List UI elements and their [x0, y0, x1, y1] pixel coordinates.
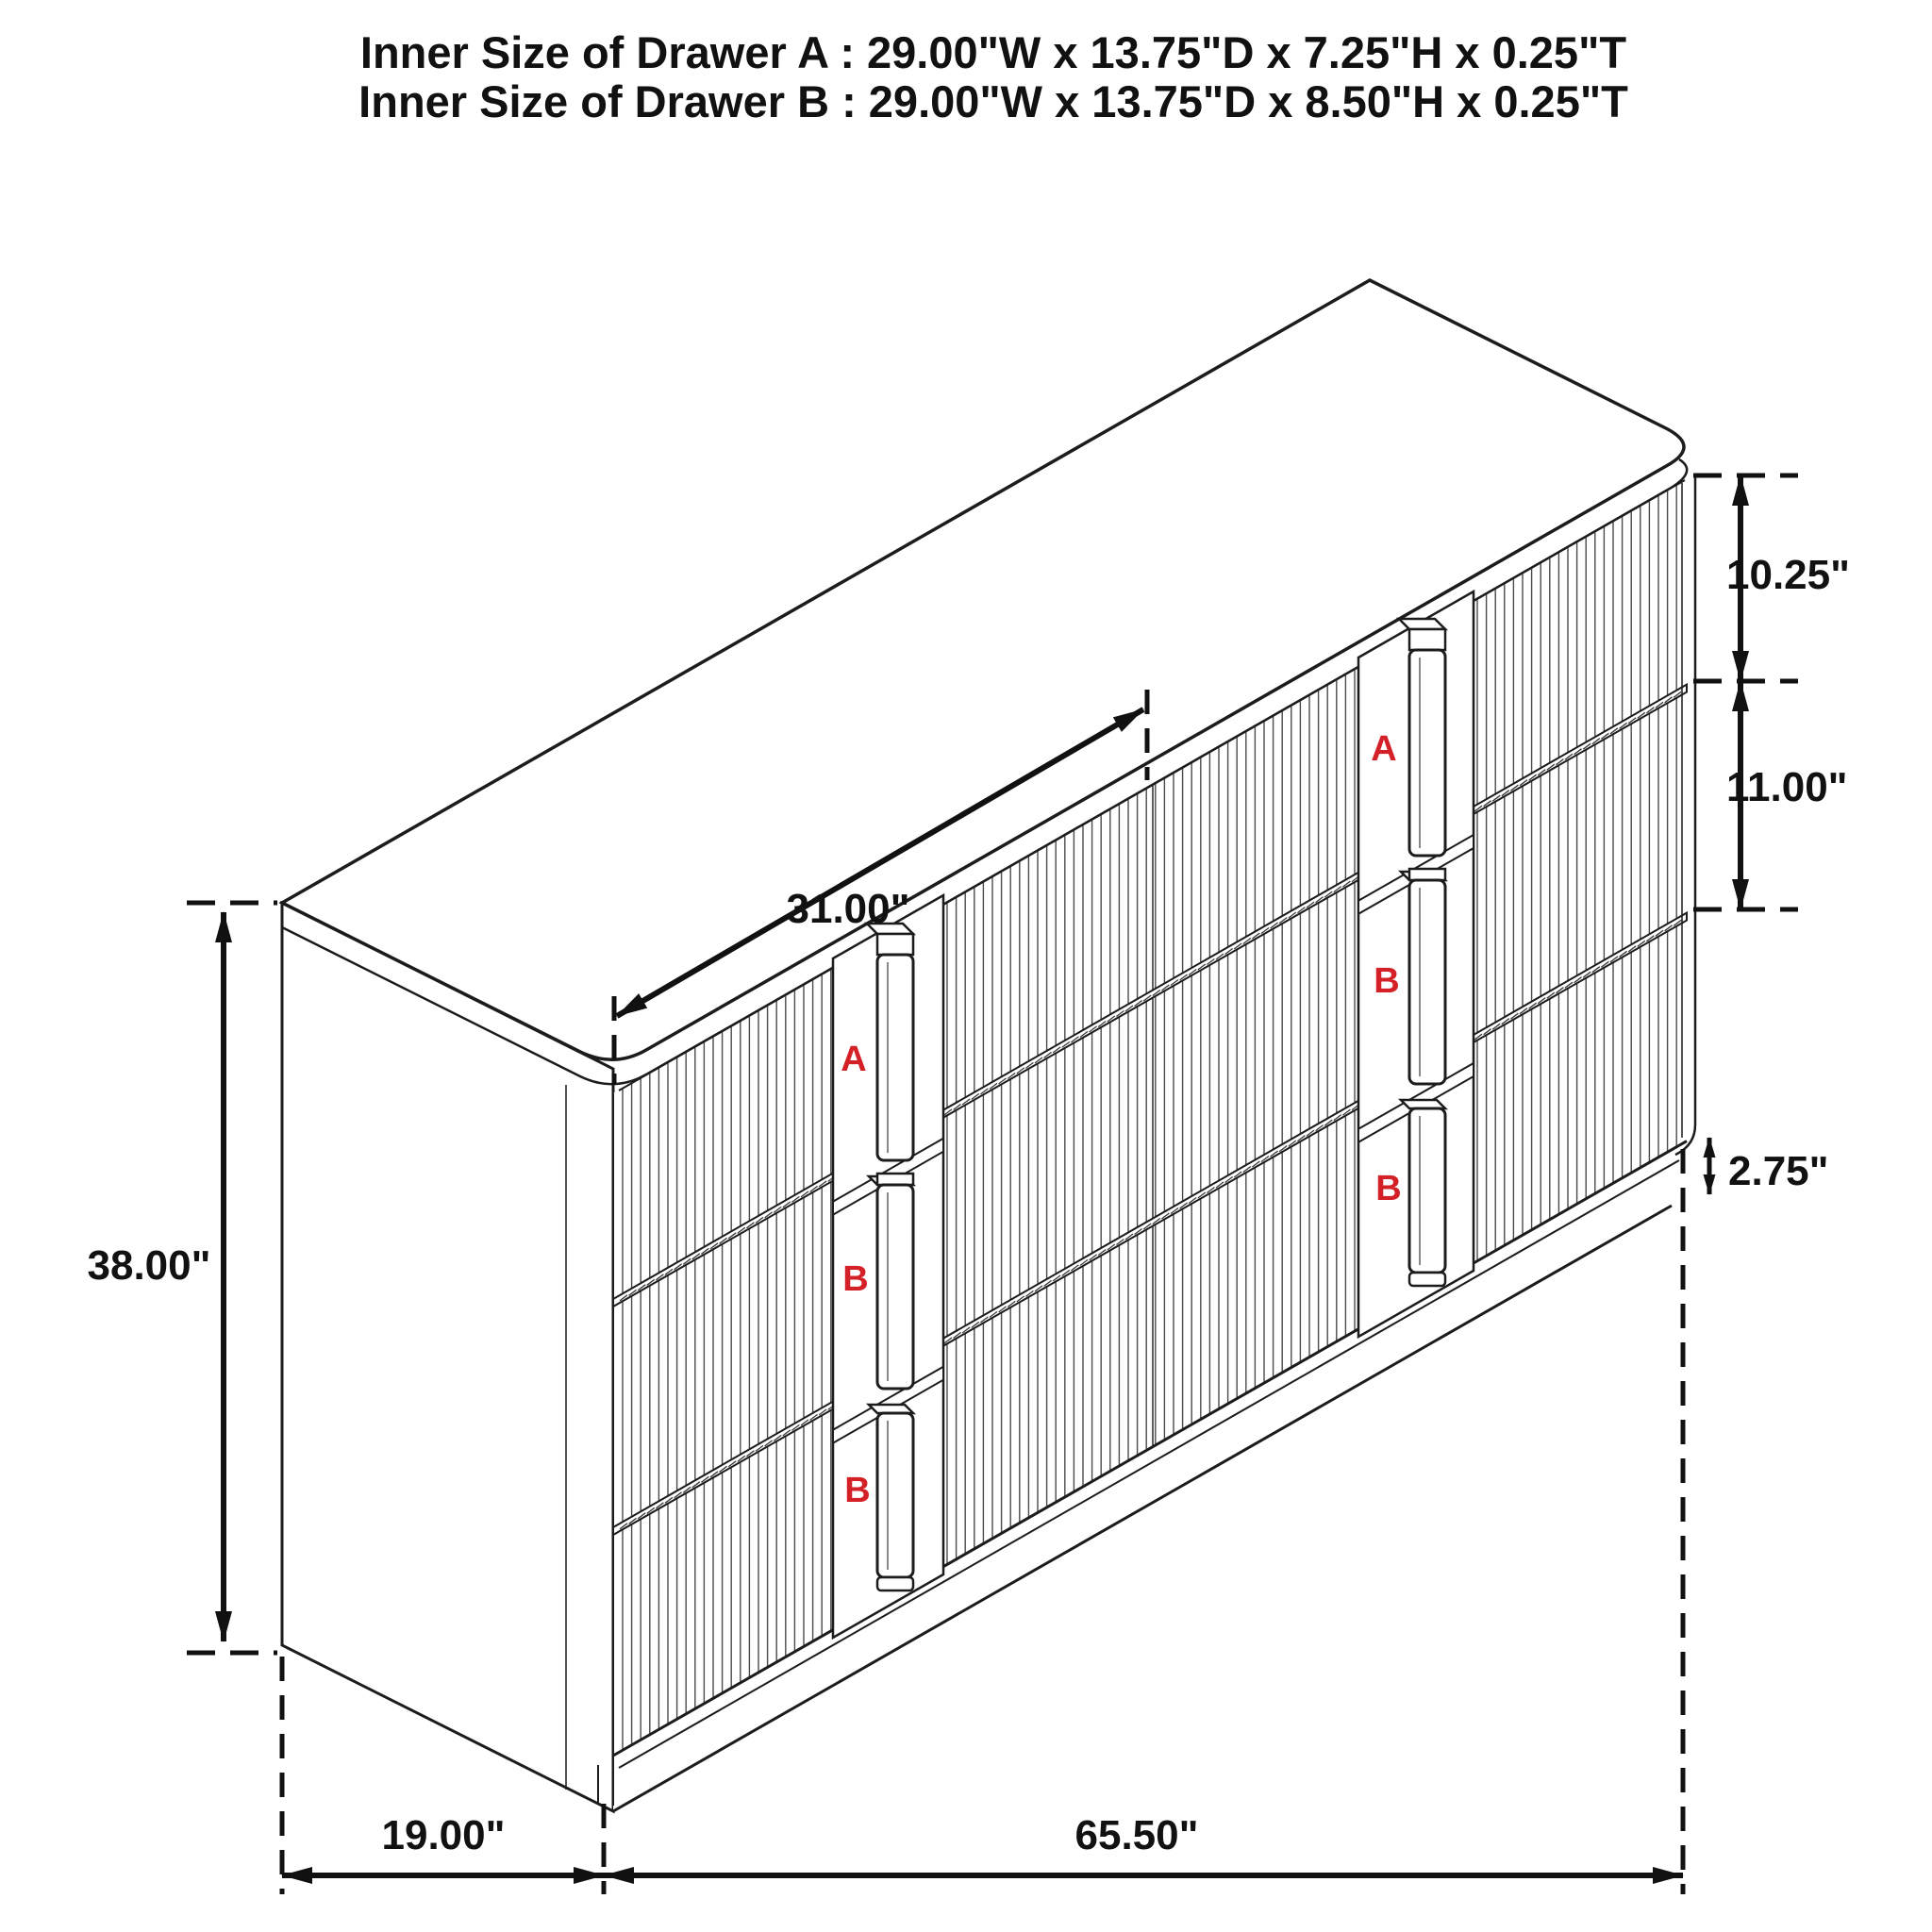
dim-label-38: 38.00"	[88, 1242, 211, 1289]
dim-label-275: 2.75"	[1728, 1148, 1829, 1194]
dim-drawer-heights: 10.25" 11.00"	[1693, 475, 1850, 909]
dim-label-1025: 10.25"	[1726, 552, 1850, 598]
handle-foot	[877, 1577, 913, 1591]
handle-foot	[1409, 1273, 1445, 1286]
right-drawer-b2-label: B	[1375, 1169, 1401, 1208]
dim-base-height: 2.75"	[1709, 1138, 1829, 1194]
right-drawer-a-label: A	[1371, 729, 1396, 769]
dim-label-1100: 11.00"	[1726, 764, 1848, 810]
left-drawer-b1-label: B	[842, 1259, 868, 1299]
title-drawer-b: Inner Size of Drawer B : 29.00"W x 13.75…	[358, 76, 1628, 126]
title-block: Inner Size of Drawer A : 29.00"W x 13.75…	[358, 27, 1628, 126]
right-drawer-b1-label: B	[1374, 961, 1399, 1001]
dim-overall-height: 38.00"	[88, 903, 277, 1653]
dresser-dimension-diagram: Inner Size of Drawer A : 29.00"W x 13.75…	[0, 0, 1932, 1932]
left-drawer-a-label: A	[841, 1040, 866, 1079]
left-drawer-b2-label: B	[844, 1471, 870, 1510]
title-drawer-a: Inner Size of Drawer A : 29.00"W x 13.75…	[360, 27, 1626, 77]
dim-label-65: 65.50"	[1075, 1812, 1199, 1858]
dim-label-31: 31.00"	[787, 886, 910, 932]
dresser-drawing: A B B A B B	[282, 280, 1695, 1811]
dim-label-19: 19.00"	[382, 1812, 506, 1858]
